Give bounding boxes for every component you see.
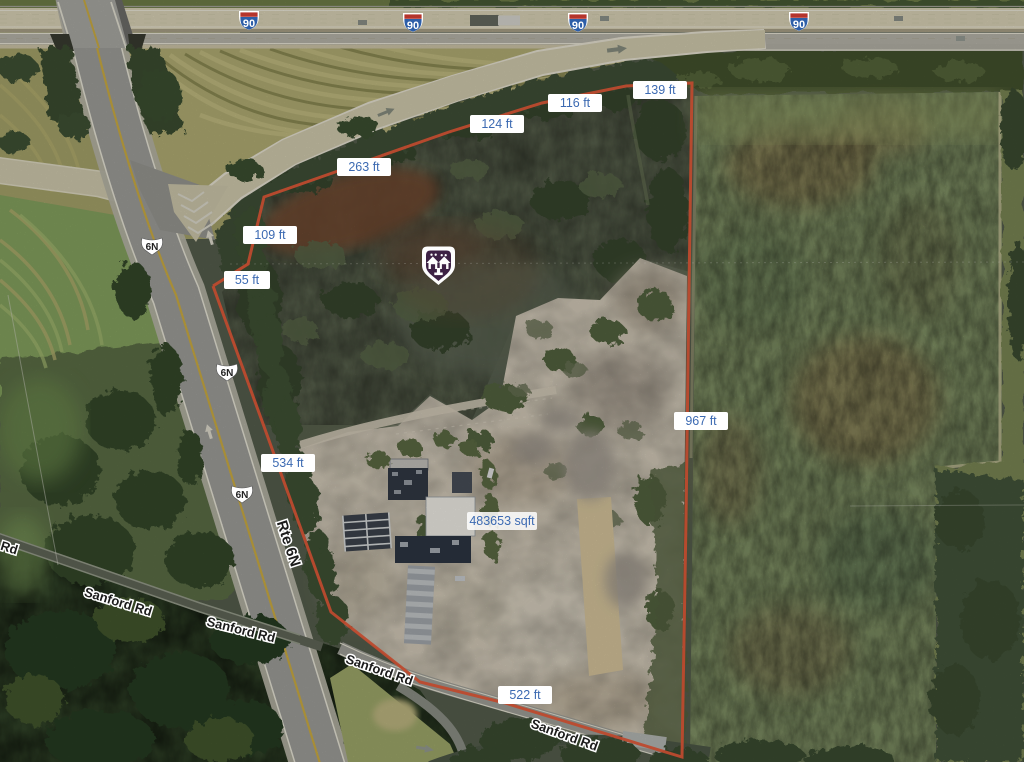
svg-text:124 ft: 124 ft bbox=[481, 117, 513, 131]
svg-text:116 ft: 116 ft bbox=[560, 96, 591, 110]
svg-text:534 ft: 534 ft bbox=[272, 456, 304, 470]
svg-text:6N: 6N bbox=[221, 368, 234, 379]
svg-text:90: 90 bbox=[572, 20, 584, 32]
svg-text:6N: 6N bbox=[146, 242, 159, 253]
svg-text:263 ft: 263 ft bbox=[348, 160, 380, 174]
svg-text:139 ft: 139 ft bbox=[644, 83, 676, 97]
svg-text:109 ft: 109 ft bbox=[254, 228, 286, 242]
svg-text:967 ft: 967 ft bbox=[685, 414, 717, 428]
svg-text:90: 90 bbox=[407, 20, 419, 32]
svg-text:483653 sqft: 483653 sqft bbox=[469, 514, 535, 528]
svg-text:90: 90 bbox=[243, 18, 255, 30]
svg-text:522 ft: 522 ft bbox=[509, 688, 541, 702]
svg-text:6N: 6N bbox=[236, 490, 249, 501]
svg-text:90: 90 bbox=[793, 19, 805, 31]
svg-text:55 ft: 55 ft bbox=[235, 273, 260, 287]
